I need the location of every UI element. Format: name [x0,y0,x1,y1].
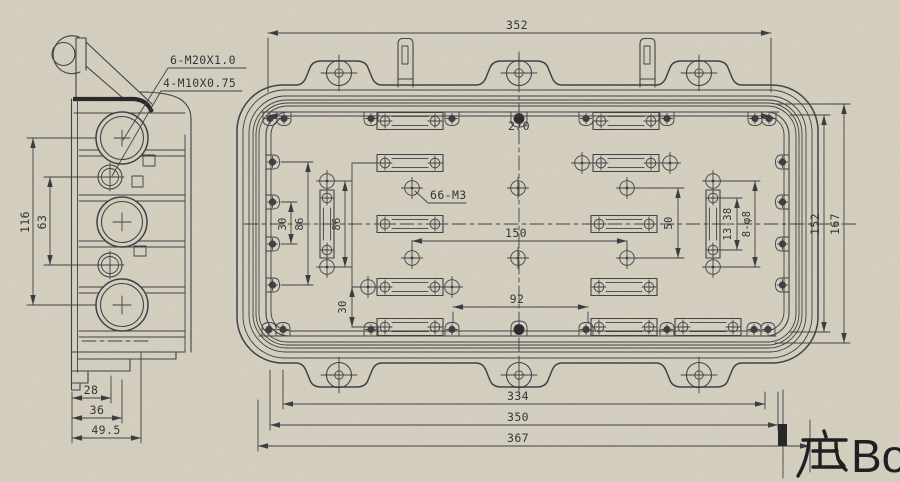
paper-grain [0,0,900,482]
engineering-drawing-page: 6-M20X1.0 4-M10X0.75 116 63 28 36 49. [0,0,900,482]
drawing-canvas: 6-M20X1.0 4-M10X0.75 116 63 28 36 49. [0,0,900,482]
